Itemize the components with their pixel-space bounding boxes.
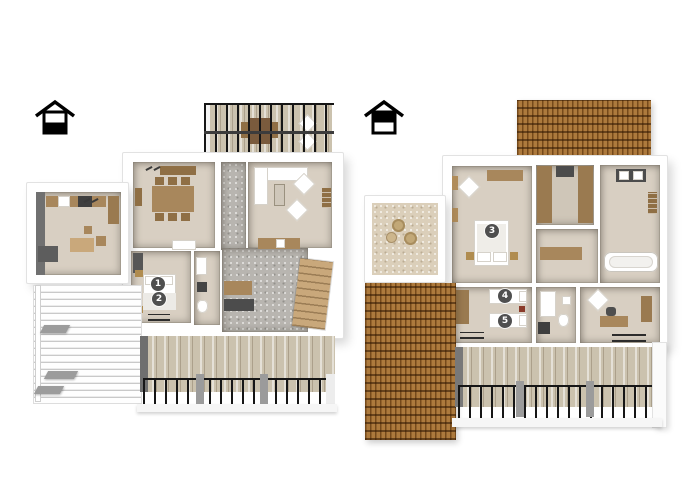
terrace-side-wall [653,343,666,427]
window-sill [452,176,458,190]
wicker-chair [404,232,417,245]
cabinet [641,296,652,322]
landing-dresser [540,247,582,260]
roof-lower [365,283,456,440]
sink [619,171,629,180]
wardrobe [455,290,469,324]
nightstand [466,252,474,260]
upper-floor-plan: 3 4 5 [0,0,700,500]
wardrobe [537,166,552,223]
pillow [519,315,527,326]
roof-upper [517,100,651,157]
wardrobe [578,166,593,223]
washer [538,322,550,334]
bedroom3-shelf [487,170,523,181]
closet-cabinet [556,166,574,177]
window-sill [452,208,458,222]
floorplan-image: 1 2 [0,0,700,500]
bed-marker-1: 1 [151,277,165,291]
bed-marker-2: 2 [152,292,166,306]
sink [562,296,571,305]
pillow [477,252,491,262]
bathtub-basin [609,256,653,268]
bed-marker-5: 5 [498,314,512,328]
pillow [493,252,507,262]
railing-post [586,381,594,417]
railing-post [516,381,524,417]
staircase-upper [612,330,646,342]
wicker-chair [392,219,405,232]
balcony-table [386,232,397,243]
house-upper-floor-icon [362,99,406,137]
terrace-base [452,418,662,427]
toilet [558,314,569,327]
nightstand [510,252,518,260]
bedside-box [519,306,525,312]
floor-mat [460,332,484,339]
bed-marker-3: 3 [485,224,499,238]
bed-marker-4: 4 [498,289,512,303]
desk-chair [606,307,616,316]
shower-tray [540,291,556,317]
pillow [519,291,527,302]
bathroom-shelf [648,192,657,214]
sink [633,171,643,180]
desk [600,316,628,327]
